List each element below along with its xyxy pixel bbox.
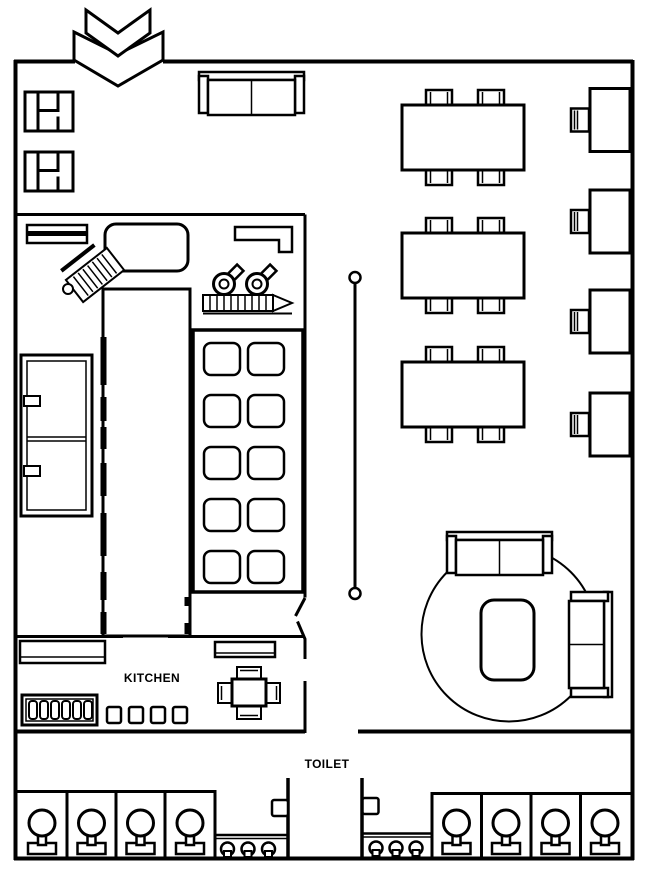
kitchen-shelf [27, 225, 87, 243]
small-bowl-icon [63, 284, 73, 294]
divider-rail [350, 272, 361, 599]
wall-table-3 [571, 290, 630, 353]
fridge-handle [24, 466, 40, 476]
kitchen-label: KITCHEN [124, 671, 180, 685]
wall-table-4 [571, 393, 630, 456]
toilet-room-left [17, 790, 288, 857]
triangle-icon [273, 295, 292, 311]
sink-counter [215, 835, 288, 857]
rail-post [350, 588, 361, 599]
lounge-area [422, 532, 613, 722]
dining-set-2 [402, 218, 524, 313]
toilet-1 [28, 810, 56, 854]
sink-counter [362, 834, 432, 857]
l-counter [235, 227, 292, 252]
rail-post [350, 272, 361, 283]
toilet-door-right [363, 798, 379, 814]
toilet-3 [127, 810, 155, 854]
toilet-area: TOILET [17, 757, 631, 858]
toilet-5 [443, 810, 471, 854]
roller-grill [203, 295, 292, 314]
entry-sofa [199, 72, 304, 115]
pass-counter-right [215, 642, 275, 657]
kitchen-door-leaf [296, 598, 306, 616]
fridge [21, 355, 92, 516]
floor-plan-drawing: KITCHEN [0, 0, 648, 869]
toilet-7 [542, 810, 570, 854]
stove-range [193, 330, 303, 592]
toilet-6 [492, 810, 520, 854]
toilet-4 [176, 810, 204, 854]
prep-trays [107, 707, 187, 723]
island-counter [101, 289, 191, 636]
coffee-table [481, 600, 534, 680]
faucet-2 [247, 265, 277, 295]
wall-table-1 [571, 89, 630, 152]
toilet-8 [591, 810, 619, 854]
pass-counter-left [20, 641, 105, 663]
dining-set-1 [402, 90, 524, 185]
lounge-sofa-top [447, 532, 552, 575]
kitchen-room: KITCHEN [17, 215, 305, 734]
entry-booth-table-2 [25, 152, 73, 191]
bottle-rack [22, 695, 97, 725]
wall-table-2 [571, 190, 630, 253]
entry-booth-table-1 [25, 92, 73, 131]
toilet-door-left [272, 800, 288, 816]
toilet-2 [78, 810, 106, 854]
fridge-handle [24, 396, 40, 406]
entrance-arrow [74, 10, 163, 86]
staff-table-set [218, 667, 280, 719]
faucet-1 [214, 265, 244, 295]
staff-table [232, 679, 266, 706]
dining-set-3 [402, 347, 524, 442]
lounge-sofa-right [569, 592, 612, 697]
floor-plan-page: KITCHEN [0, 0, 648, 869]
toilet-room-right [362, 792, 631, 857]
toilet-label: TOILET [305, 757, 350, 771]
